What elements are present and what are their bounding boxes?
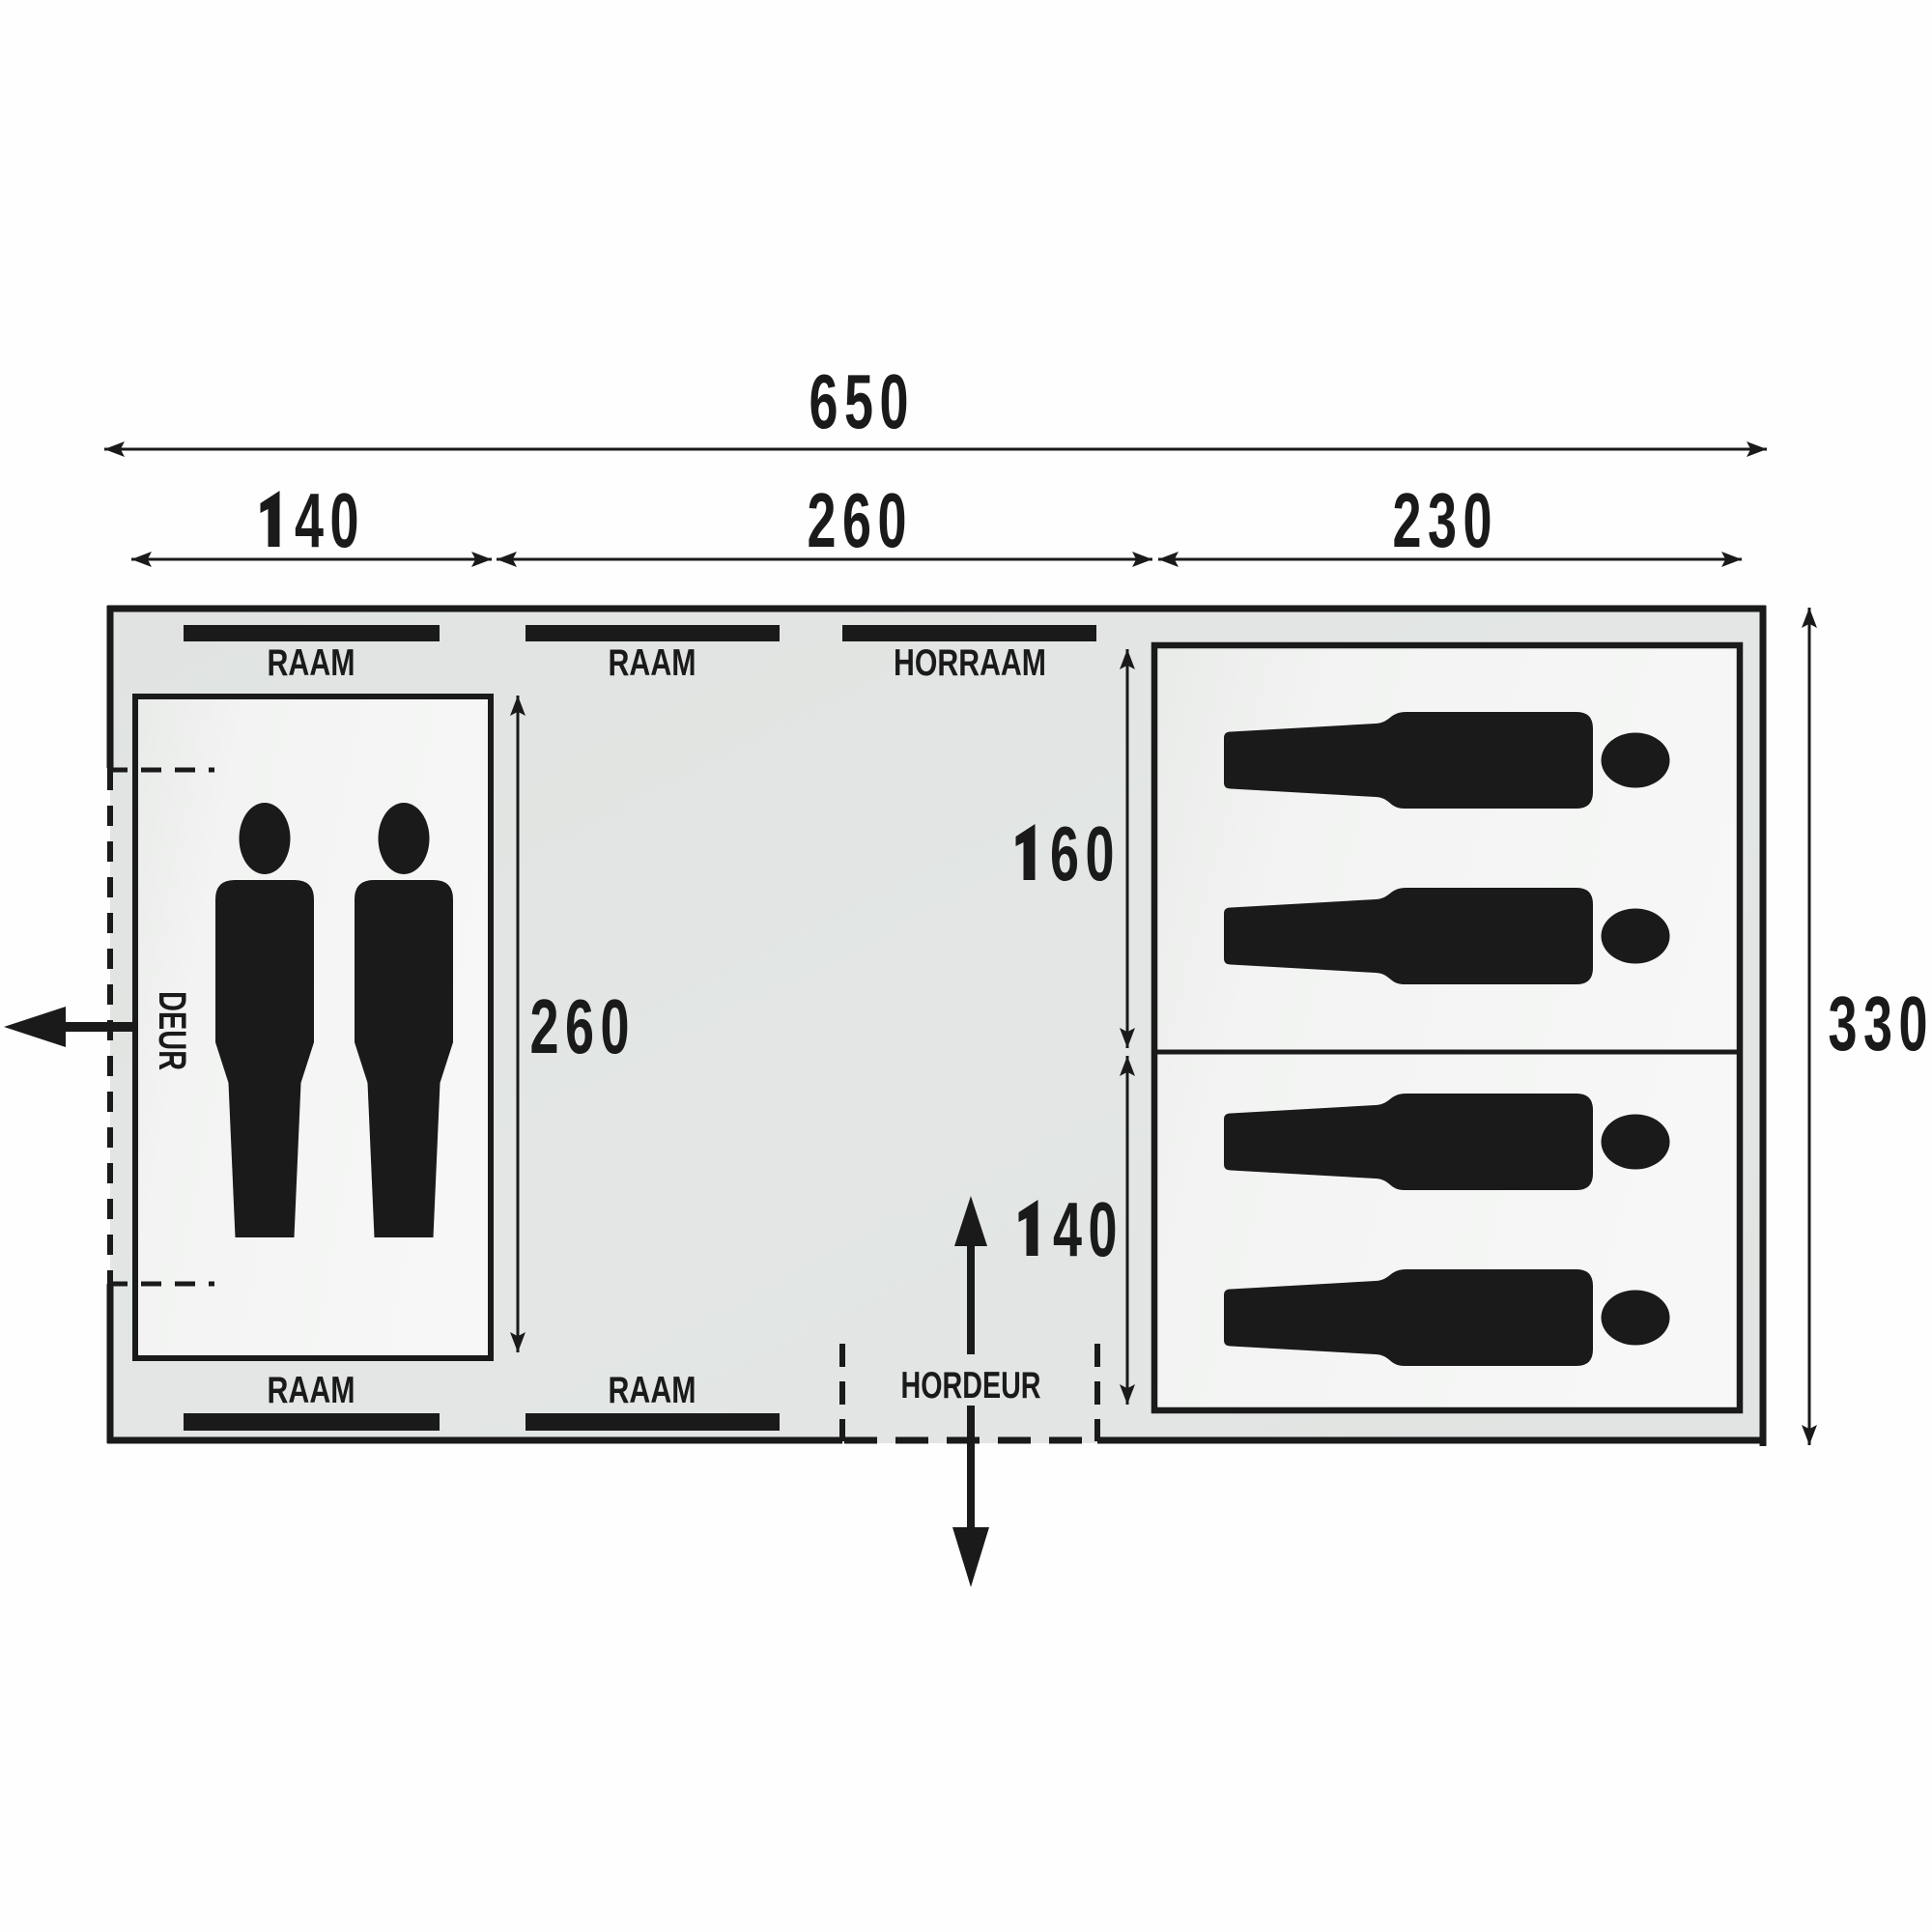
svg-text:RAAM: RAAM — [268, 642, 355, 684]
svg-text:0: 0 — [880, 358, 909, 444]
svg-text:HORRAAM: HORRAAM — [894, 642, 1046, 684]
svg-text:0: 0 — [1086, 810, 1115, 896]
svg-text:4: 4 — [295, 477, 324, 563]
svg-text:2: 2 — [1393, 477, 1422, 563]
svg-text:0: 0 — [1089, 1186, 1118, 1272]
svg-text:0: 0 — [601, 983, 630, 1069]
svg-text:DEUR: DEUR — [151, 991, 193, 1070]
svg-text:2: 2 — [808, 477, 837, 563]
svg-text:5: 5 — [844, 358, 873, 444]
svg-text:6: 6 — [842, 477, 871, 563]
svg-text:RAAM: RAAM — [609, 642, 696, 684]
svg-text:0: 0 — [1463, 477, 1492, 563]
svg-text:0: 0 — [330, 477, 359, 563]
svg-text:3: 3 — [1829, 980, 1858, 1066]
svg-text:6: 6 — [565, 983, 594, 1069]
svg-text:RAAM: RAAM — [609, 1370, 696, 1411]
svg-text:6: 6 — [810, 358, 838, 444]
svg-text:3: 3 — [1428, 477, 1457, 563]
svg-text:HORDEUR: HORDEUR — [901, 1365, 1041, 1406]
svg-text:0: 0 — [1899, 980, 1928, 1066]
svg-text:6: 6 — [1050, 810, 1079, 896]
svg-text:3: 3 — [1863, 980, 1892, 1066]
svg-text:4: 4 — [1053, 1186, 1082, 1272]
svg-text:2: 2 — [530, 983, 559, 1069]
svg-text:RAAM: RAAM — [268, 1370, 355, 1411]
svg-text:0: 0 — [878, 477, 907, 563]
